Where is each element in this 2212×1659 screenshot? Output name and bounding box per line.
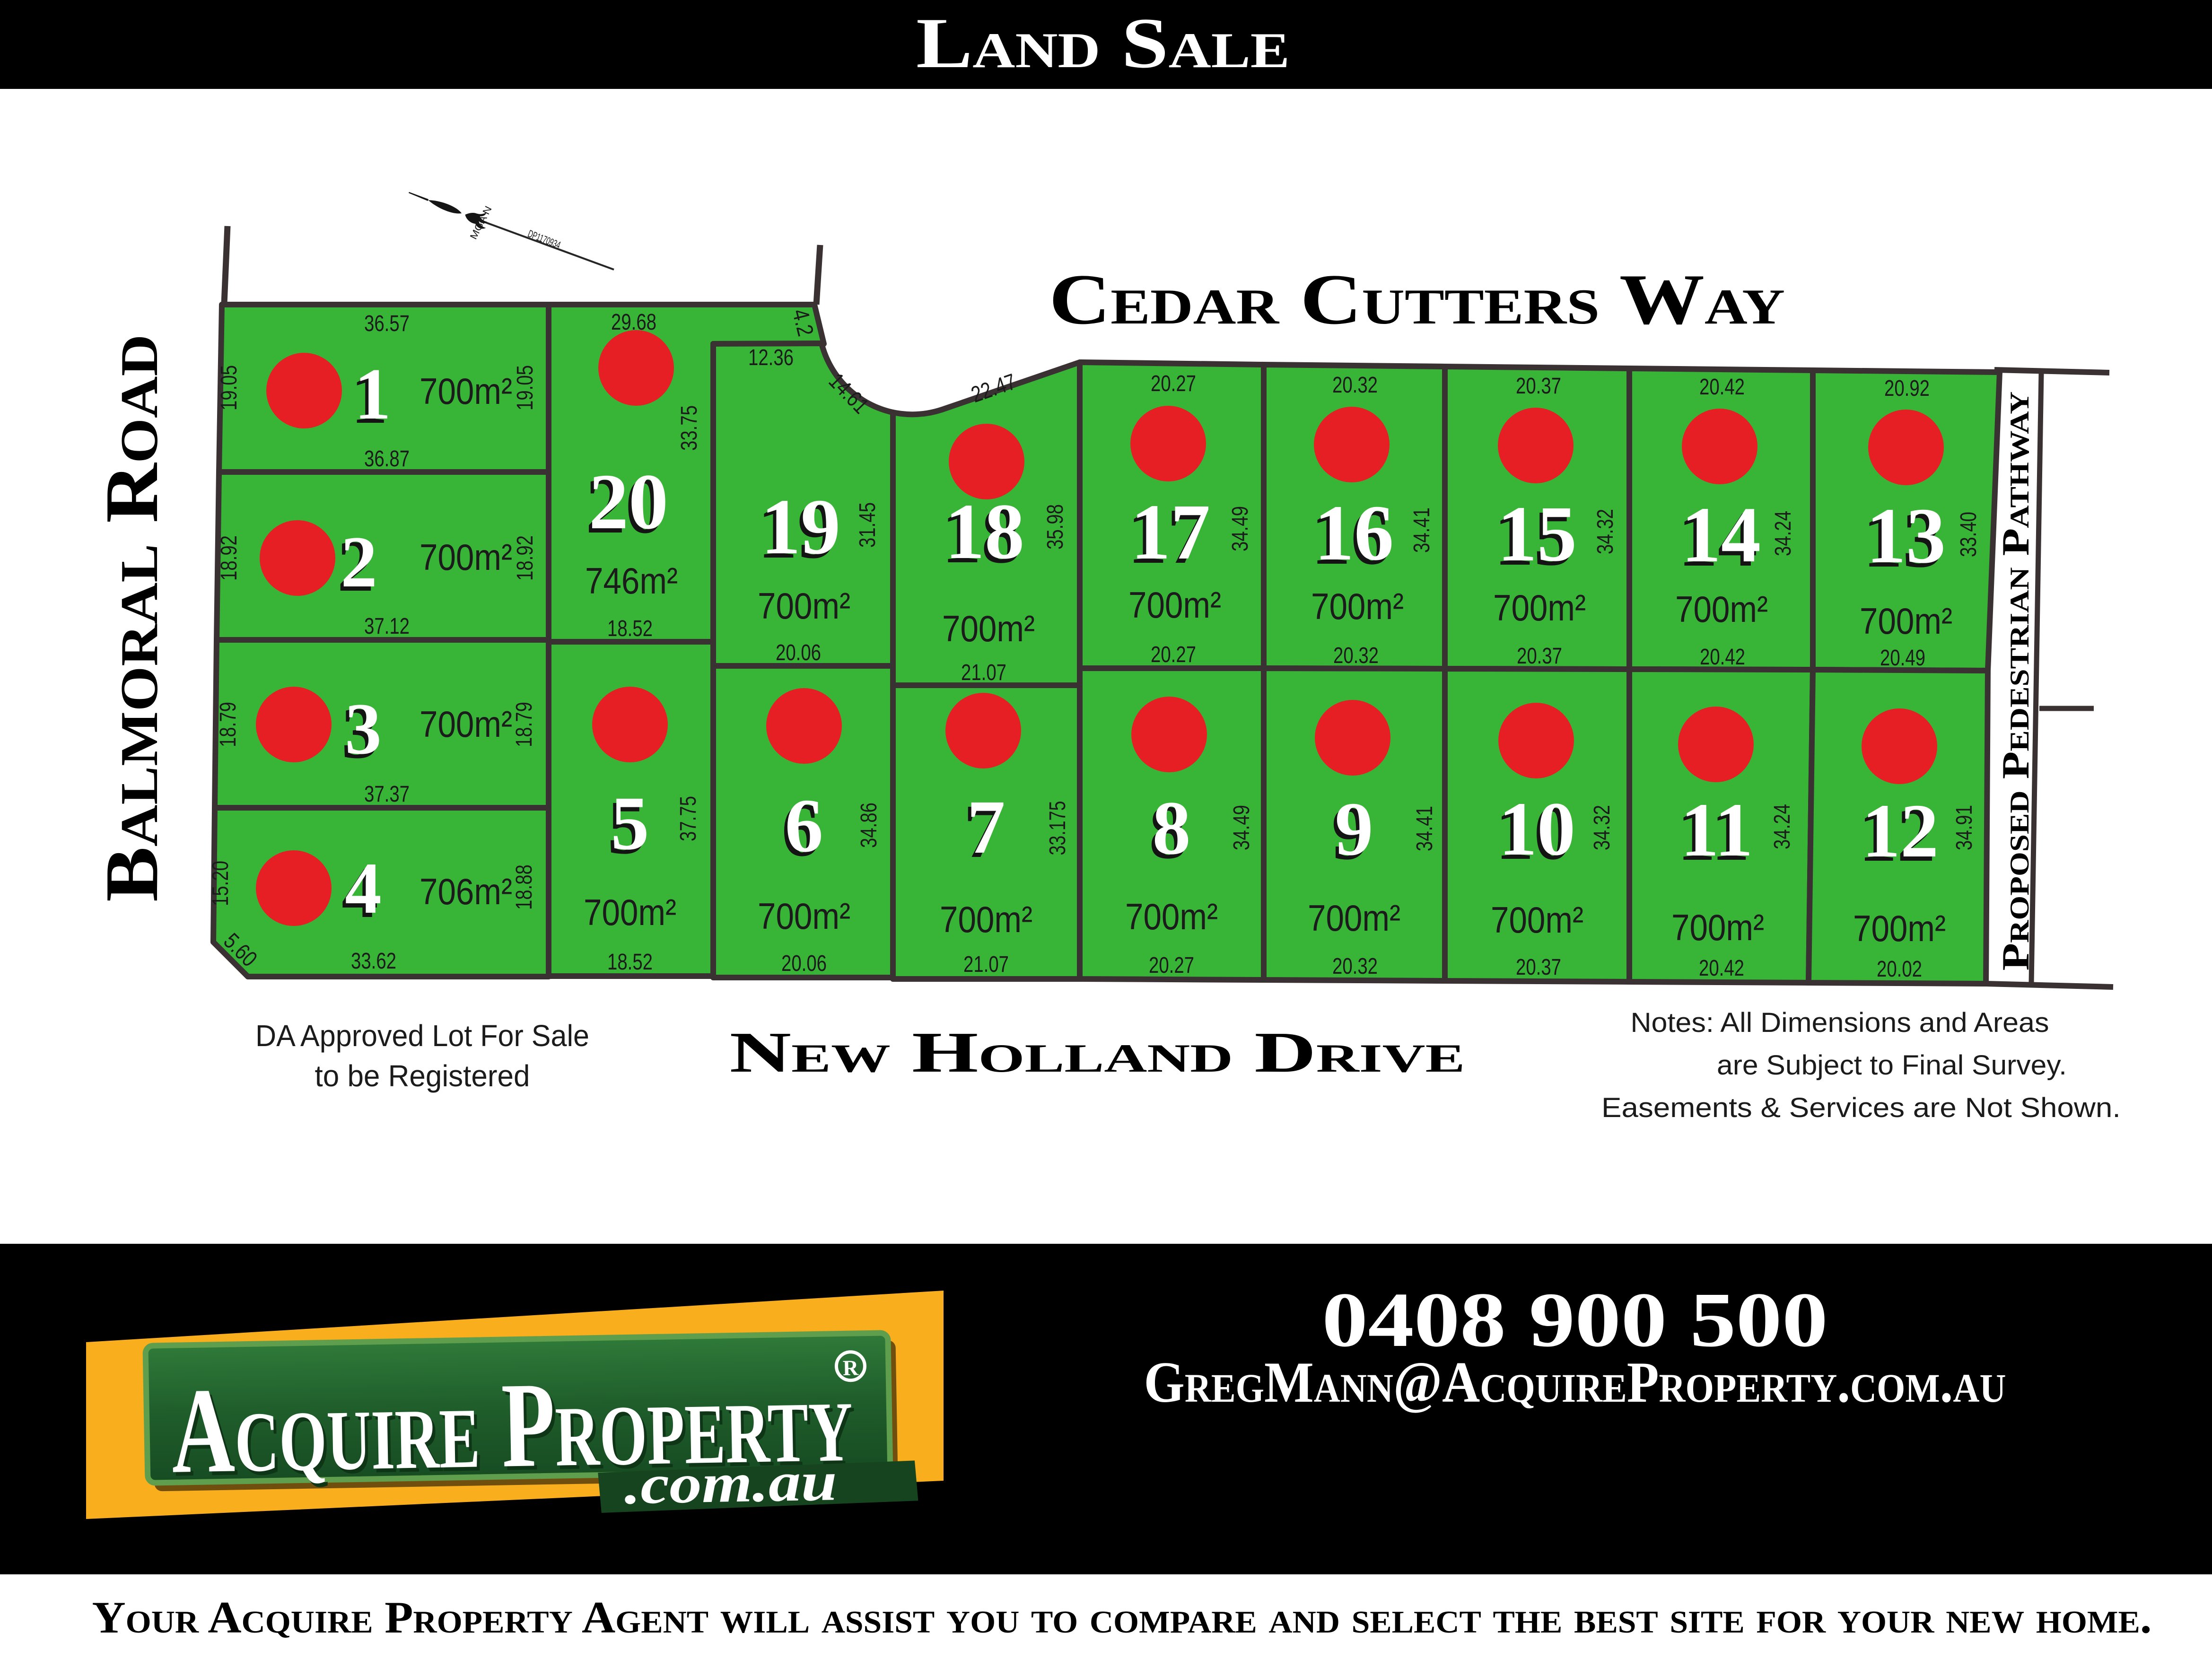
svg-text:21.07: 21.07	[961, 660, 1006, 685]
svg-text:34.49: 34.49	[1228, 506, 1253, 551]
svg-text:16: 16	[1314, 489, 1394, 577]
svg-text:18.79: 18.79	[216, 702, 241, 747]
svg-text:20.42: 20.42	[1700, 645, 1745, 670]
svg-text:700m²: 700m²	[584, 891, 676, 933]
svg-text:18: 18	[945, 488, 1024, 576]
svg-text:36.57: 36.57	[364, 311, 410, 336]
svg-text:Balmoral Road: Balmoral Road	[89, 334, 174, 902]
svg-text:20.06: 20.06	[781, 951, 827, 976]
svg-text:Your Acquire Property Agent wi: Your Acquire Property Agent will assist …	[92, 1592, 2152, 1642]
svg-text:34.86: 34.86	[857, 803, 882, 848]
svg-text:20.06: 20.06	[776, 640, 821, 665]
svg-text:19.05: 19.05	[217, 365, 242, 410]
svg-text:34.41: 34.41	[1412, 806, 1437, 851]
svg-text:20.32: 20.32	[1333, 643, 1379, 668]
svg-text:33.75: 33.75	[677, 405, 702, 451]
svg-text:706m²: 706m²	[420, 871, 512, 912]
svg-text:746m²: 746m²	[585, 560, 678, 602]
svg-text:700m²: 700m²	[942, 608, 1035, 649]
svg-text:2: 2	[341, 521, 377, 602]
svg-text:34.32: 34.32	[1590, 805, 1615, 850]
svg-text:34.24: 34.24	[1771, 511, 1796, 556]
svg-text:20.27: 20.27	[1151, 642, 1196, 667]
svg-text:33.175: 33.175	[1045, 801, 1070, 856]
svg-text:14: 14	[1681, 491, 1761, 579]
svg-text:10: 10	[1499, 787, 1575, 872]
svg-text:6: 6	[785, 784, 823, 868]
svg-text:DA Approved Lot For Sale: DA Approved Lot For Sale	[255, 1019, 589, 1053]
svg-text:3: 3	[345, 688, 382, 769]
svg-text:9: 9	[1335, 787, 1373, 872]
svg-text:34.32: 34.32	[1593, 509, 1618, 554]
svg-text:700m²: 700m²	[940, 899, 1032, 940]
svg-text:Easements & Services are Not S: Easements & Services are Not Shown.	[1601, 1092, 2121, 1123]
svg-text:700m²: 700m²	[1671, 907, 1764, 948]
svg-text:700m²: 700m²	[420, 703, 512, 745]
svg-text:33.62: 33.62	[351, 949, 396, 974]
svg-text:20.37: 20.37	[1517, 644, 1562, 669]
svg-text:700m²: 700m²	[420, 370, 512, 412]
svg-text:34.41: 34.41	[1409, 507, 1434, 553]
svg-text:8: 8	[1153, 786, 1191, 871]
svg-text:20.42: 20.42	[1699, 956, 1744, 981]
svg-text:GregMann@AcquireProperty.com.a: GregMann@AcquireProperty.com.au	[1144, 1350, 2006, 1415]
svg-text:700m²: 700m²	[420, 536, 512, 578]
svg-text:700m²: 700m²	[1128, 584, 1221, 626]
svg-text:13: 13	[1866, 492, 1946, 580]
svg-text:4: 4	[345, 847, 382, 929]
svg-text:Cedar Cutters Way: Cedar Cutters Way	[1049, 260, 1785, 339]
svg-text:20.02: 20.02	[1877, 957, 1922, 982]
svg-text:18.92: 18.92	[217, 535, 242, 581]
svg-text:15.20: 15.20	[208, 861, 233, 906]
svg-text:20.37: 20.37	[1516, 374, 1561, 399]
svg-text:Notes: All Dimensions and Area: Notes: All Dimensions and Areas	[1631, 1007, 2049, 1038]
svg-text:18.79: 18.79	[512, 702, 537, 747]
svg-text:700m²: 700m²	[1853, 908, 1946, 949]
svg-text:21.07: 21.07	[963, 952, 1009, 977]
svg-text:37.12: 37.12	[364, 614, 410, 639]
svg-text:17: 17	[1131, 488, 1210, 576]
svg-text:1: 1	[354, 353, 391, 435]
svg-text:19: 19	[761, 483, 840, 571]
svg-text:18.52: 18.52	[607, 616, 653, 641]
svg-text:7: 7	[967, 785, 1005, 870]
svg-text:31.45: 31.45	[855, 502, 880, 548]
svg-text:20.37: 20.37	[1516, 955, 1561, 980]
svg-text:35.98: 35.98	[1043, 504, 1068, 550]
svg-text:33.40: 33.40	[1956, 512, 1981, 557]
svg-text:18.92: 18.92	[513, 535, 538, 581]
svg-text:5: 5	[611, 781, 649, 866]
svg-text:15: 15	[1497, 490, 1577, 578]
svg-text:R: R	[842, 1355, 859, 1380]
svg-text:29.68: 29.68	[611, 310, 656, 335]
svg-text:19.05: 19.05	[513, 365, 538, 410]
svg-text:700m²: 700m²	[758, 895, 850, 937]
svg-text:37.75: 37.75	[676, 796, 701, 841]
svg-text:20.32: 20.32	[1332, 373, 1378, 398]
svg-text:20.32: 20.32	[1332, 954, 1378, 979]
svg-text:34.49: 34.49	[1229, 805, 1254, 850]
svg-text:20.27: 20.27	[1151, 371, 1196, 396]
svg-text:34.24: 34.24	[1770, 804, 1795, 849]
svg-text:700m²: 700m²	[1675, 588, 1768, 630]
svg-text:20: 20	[589, 458, 668, 546]
svg-text:18.52: 18.52	[607, 950, 653, 975]
svg-text:700m²: 700m²	[1308, 897, 1400, 939]
svg-text:37.37: 37.37	[364, 782, 410, 807]
svg-text:36.87: 36.87	[364, 446, 410, 472]
svg-text:12: 12	[1862, 789, 1939, 873]
svg-text:Land Sale: Land Sale	[916, 3, 1290, 83]
svg-text:700m²: 700m²	[1125, 896, 1218, 937]
svg-text:700m²: 700m²	[1860, 600, 1952, 642]
svg-text:12.36: 12.36	[748, 345, 794, 370]
svg-text:700m²: 700m²	[1491, 899, 1583, 941]
svg-text:700m²: 700m²	[1493, 587, 1586, 629]
svg-text:are Subject to Final Survey.: are Subject to Final Survey.	[1717, 1050, 2067, 1081]
svg-text:20.27: 20.27	[1149, 953, 1194, 978]
svg-text:700m²: 700m²	[1311, 585, 1404, 627]
svg-text:700m²: 700m²	[758, 585, 850, 627]
svg-text:.com.au: .com.au	[624, 1450, 838, 1516]
svg-text:18.88: 18.88	[512, 864, 537, 910]
svg-text:to be Registered: to be Registered	[315, 1059, 530, 1093]
svg-text:Proposed Pedestrian Pathway: Proposed Pedestrian Pathway	[1994, 392, 2037, 971]
svg-text:20.49: 20.49	[1880, 646, 1925, 671]
svg-text:11: 11	[1680, 788, 1753, 873]
svg-text:New Holland Drive: New Holland Drive	[730, 1021, 1465, 1084]
svg-text:20.42: 20.42	[1699, 375, 1745, 400]
svg-text:34.91: 34.91	[1952, 805, 1977, 850]
svg-text:20.92: 20.92	[1884, 376, 1930, 401]
